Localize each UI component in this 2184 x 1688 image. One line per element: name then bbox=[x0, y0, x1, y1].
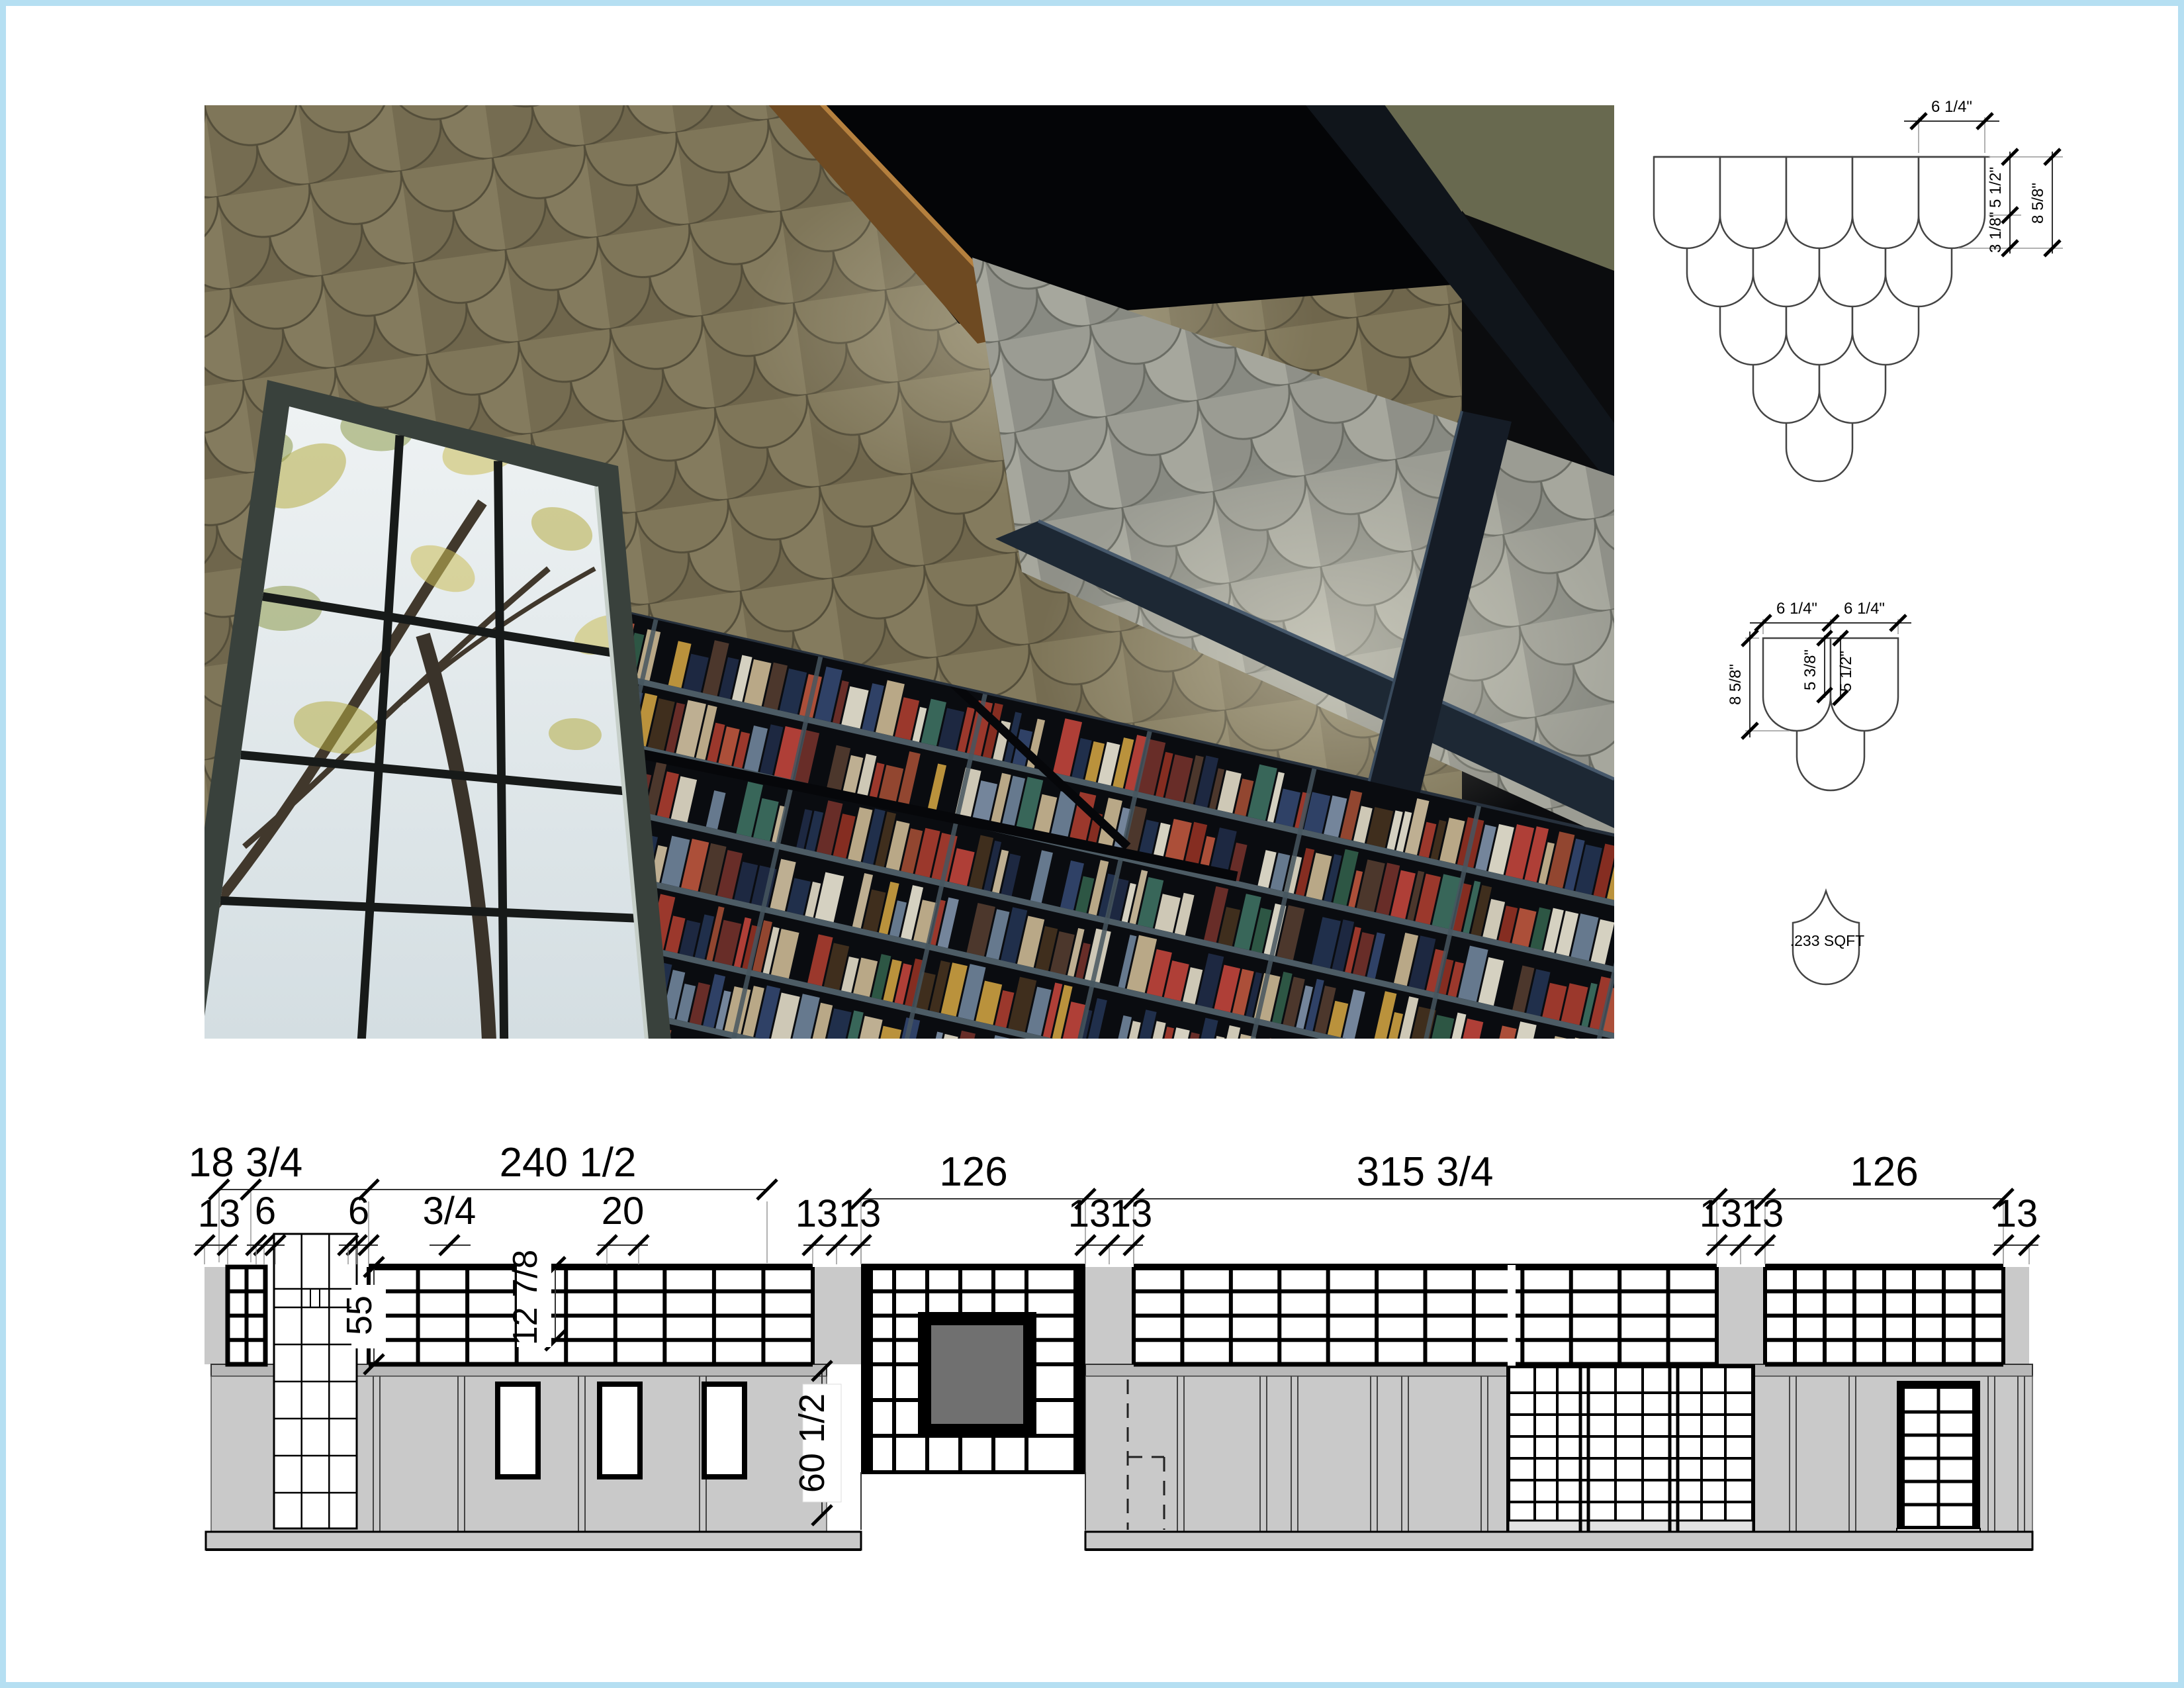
svg-text:240 1/2: 240 1/2 bbox=[500, 1140, 637, 1186]
shingle-exposure-diagram: .233 SQFT bbox=[1790, 891, 1864, 984]
svg-text:315 3/4: 315 3/4 bbox=[1357, 1149, 1494, 1195]
front-elevation: 18 3/4240 1/2126315 3/412613663/42013131… bbox=[189, 1140, 2039, 1550]
svg-text:13: 13 bbox=[1741, 1192, 1784, 1235]
svg-text:3 1/8": 3 1/8" bbox=[1987, 212, 2005, 253]
svg-text:20: 20 bbox=[602, 1190, 645, 1233]
drawing-sheet: 6 1/4"5 1/2"3 1/8"8 5/8" 6 1/4"6 1/4"8 5… bbox=[0, 0, 2184, 1688]
svg-text:13: 13 bbox=[198, 1192, 241, 1235]
svg-text:6 1/4": 6 1/4" bbox=[1931, 98, 1972, 116]
svg-text:5 1/2": 5 1/2" bbox=[1837, 651, 1855, 692]
svg-text:8 5/8": 8 5/8" bbox=[2029, 183, 2047, 224]
svg-text:13: 13 bbox=[1110, 1192, 1153, 1235]
shingle-pattern-diagram: 6 1/4"5 1/2"3 1/8"8 5/8" bbox=[1654, 98, 2063, 481]
shingle-detail-diagram: 6 1/4"6 1/4"8 5/8"5 3/8"5 1/2" bbox=[1727, 600, 1911, 790]
svg-text:126: 126 bbox=[939, 1149, 1007, 1195]
svg-text:13: 13 bbox=[796, 1192, 839, 1235]
svg-text:5 3/8": 5 3/8" bbox=[1801, 649, 1819, 690]
svg-text:5 1/2": 5 1/2" bbox=[1987, 167, 2005, 208]
svg-text:55: 55 bbox=[340, 1295, 379, 1335]
svg-text:60 1/2: 60 1/2 bbox=[792, 1393, 832, 1493]
linework-layer: 6 1/4"5 1/2"3 1/8"8 5/8" 6 1/4"6 1/4"8 5… bbox=[6, 6, 2184, 1688]
svg-text:6: 6 bbox=[255, 1190, 276, 1233]
shingle-area-label: .233 SQFT bbox=[1790, 932, 1864, 949]
svg-text:3/4: 3/4 bbox=[423, 1190, 477, 1233]
svg-text:6 1/4": 6 1/4" bbox=[1844, 600, 1885, 618]
svg-text:6: 6 bbox=[348, 1190, 369, 1233]
svg-text:12 7/8: 12 7/8 bbox=[506, 1250, 545, 1346]
svg-text:13: 13 bbox=[1068, 1192, 1111, 1235]
svg-text:18 3/4: 18 3/4 bbox=[189, 1140, 302, 1186]
svg-text:13: 13 bbox=[1700, 1192, 1743, 1235]
svg-text:8 5/8": 8 5/8" bbox=[1727, 664, 1745, 705]
svg-text:13: 13 bbox=[839, 1192, 882, 1235]
svg-text:13: 13 bbox=[1995, 1192, 2038, 1235]
svg-text:6 1/4": 6 1/4" bbox=[1776, 600, 1817, 618]
svg-text:126: 126 bbox=[1850, 1149, 1918, 1195]
